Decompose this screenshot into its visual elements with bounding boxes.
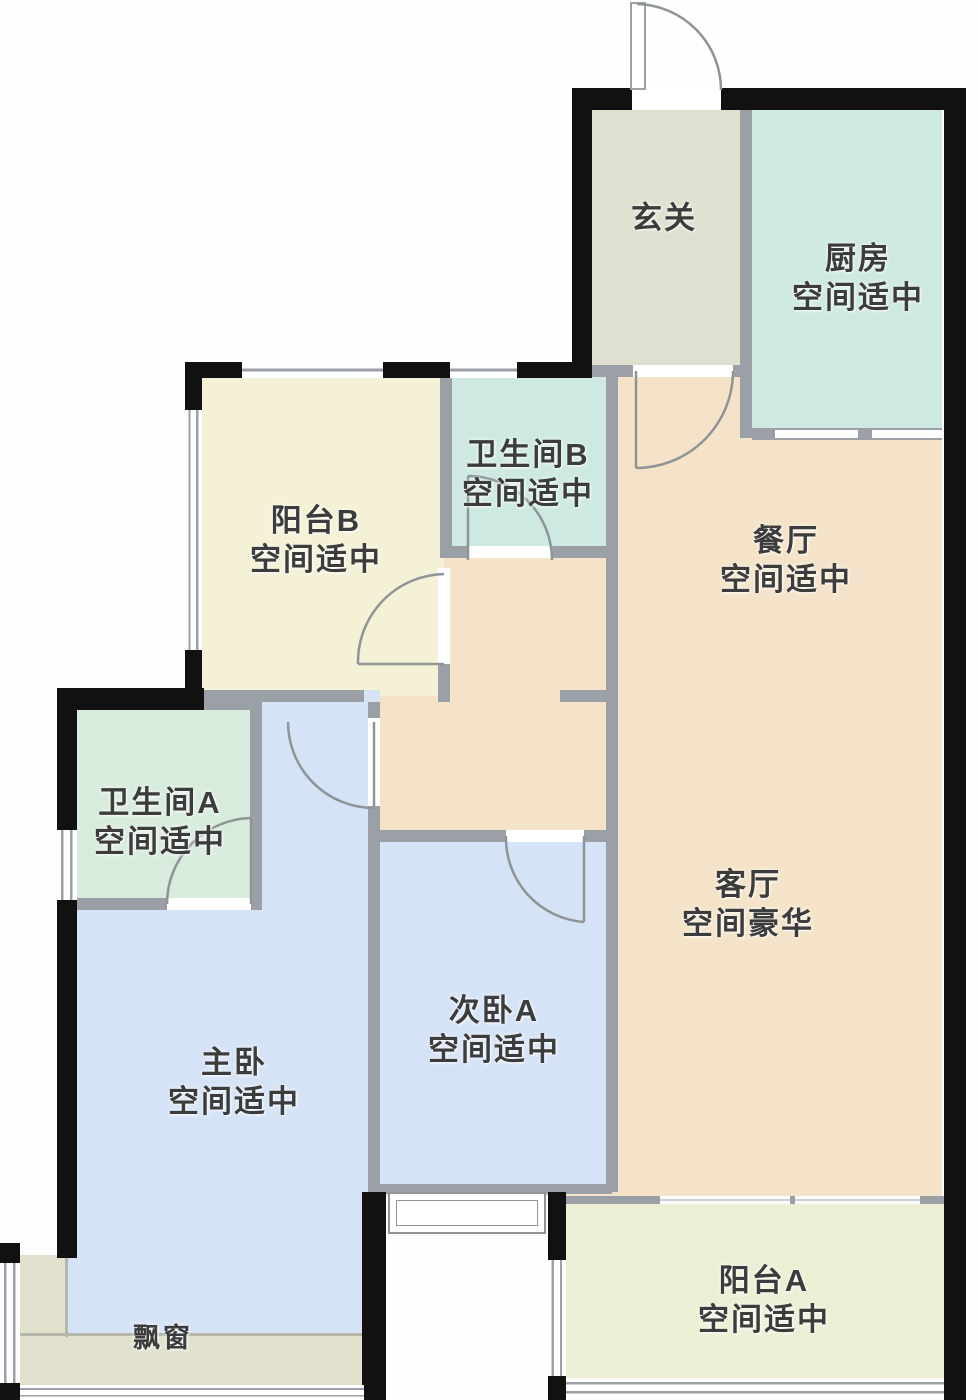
room-name: 玄关 [631, 199, 697, 238]
label-bedroom-a: 次卧A 空间适中 [428, 991, 560, 1069]
room-name: 阳台B [250, 501, 382, 540]
interior-wall [368, 702, 380, 718]
room-name: 飘窗 [133, 1323, 193, 1353]
room-rating: 空间适中 [720, 560, 852, 599]
bedroom-a-bay-window [388, 1192, 546, 1234]
room-name: 阳台A [698, 1261, 830, 1300]
exterior-wall [57, 900, 77, 1258]
label-dining: 餐厅 空间适中 [720, 521, 852, 599]
exterior-wall [944, 88, 966, 1400]
room-name: 卫生间B [462, 435, 594, 474]
entrance-door-leaf [630, 2, 646, 90]
room-name: 卫生间A [94, 783, 226, 822]
window-symbol [566, 1378, 944, 1398]
exterior-wall [721, 88, 966, 110]
exterior-wall [362, 1192, 386, 1400]
room-rating: 空间适中 [94, 822, 226, 861]
label-bath-a: 卫生间A 空间适中 [94, 783, 226, 861]
interior-wall [606, 371, 618, 1192]
interior-wall [368, 806, 380, 1192]
room-rating: 空间适中 [698, 1300, 830, 1339]
bay-window-edge-line [20, 1333, 376, 1336]
interior-wall [250, 702, 262, 906]
room-rating: 空间适中 [168, 1082, 300, 1121]
exterior-wall [0, 1383, 20, 1400]
interior-wall [440, 371, 452, 558]
window-symbol [548, 1260, 566, 1376]
exterior-wall [57, 688, 204, 710]
label-bath-b: 卫生间B 空间适中 [462, 435, 594, 513]
label-bay-window: 飘窗 [133, 1323, 193, 1353]
exterior-wall [185, 362, 202, 410]
window-symbol [242, 362, 383, 378]
room-name: 厨房 [792, 239, 924, 278]
exterior-wall [548, 1192, 566, 1260]
door-opening [506, 830, 584, 842]
exterior-wall [57, 688, 77, 830]
window-symbol [20, 1385, 364, 1400]
room-name: 餐厅 [720, 521, 852, 560]
room-bay-window-bottom [20, 1335, 374, 1388]
label-hallway: 玄关 [631, 199, 697, 238]
window-symbol [660, 1196, 790, 1204]
interior-wall [740, 108, 752, 438]
room-dining-upper [612, 377, 752, 445]
door-opening [468, 546, 552, 558]
door-opening [167, 898, 251, 910]
window-symbol [775, 428, 858, 440]
window-symbol [0, 1263, 20, 1383]
interior-wall [438, 664, 450, 702]
exterior-wall [548, 1376, 566, 1400]
exterior-wall [383, 362, 450, 378]
room-corridor [257, 690, 380, 932]
interior-wall [560, 1196, 660, 1204]
window-symbol [185, 410, 202, 650]
room-rating: 空间豪华 [682, 904, 814, 943]
interior-wall [374, 830, 506, 842]
door-opening [633, 365, 733, 377]
label-balcony-a: 阳台A 空间适中 [698, 1261, 830, 1339]
room-name: 主卧 [168, 1043, 300, 1082]
window-symbol [57, 830, 77, 900]
room-name: 次卧A [428, 991, 560, 1030]
exterior-wall [517, 362, 592, 378]
interior-wall [733, 365, 742, 377]
door-swing-arc [637, 4, 721, 90]
bedroom-a-bay-window-inner [396, 1200, 538, 1226]
room-rating: 空间适中 [428, 1030, 560, 1069]
interior-wall [552, 546, 612, 558]
label-kitchen: 厨房 空间适中 [792, 239, 924, 317]
room-rating: 空间适中 [792, 278, 924, 317]
window-symbol [450, 362, 517, 378]
interior-wall [560, 690, 618, 702]
room-rating: 空间适中 [462, 474, 594, 513]
floor-plan: 玄关 厨房 空间适中 卫生间B 空间适中 阳台B 空间适中 餐厅 空间适中 卫生… [0, 0, 978, 1400]
door-opening [368, 718, 380, 806]
interior-wall [440, 546, 468, 558]
bay-window-edge-line [65, 1255, 68, 1337]
door-opening [438, 568, 450, 664]
label-living: 客厅 空间豪华 [682, 865, 814, 943]
room-master [67, 906, 374, 1337]
exterior-wall [572, 88, 592, 370]
exterior-wall [0, 1243, 20, 1263]
window-symbol [795, 1196, 920, 1204]
room-hallway [592, 108, 740, 368]
label-balcony-b: 阳台B 空间适中 [250, 501, 382, 579]
door-opening [632, 88, 721, 110]
interior-wall [584, 830, 612, 842]
window-symbol [872, 428, 942, 440]
room-name: 客厅 [682, 865, 814, 904]
interior-wall [251, 898, 262, 910]
room-rating: 空间适中 [250, 540, 382, 579]
interior-wall [920, 1196, 944, 1204]
floor-plan-screenshot: 玄关 厨房 空间适中 卫生间B 空间适中 阳台B 空间适中 餐厅 空间适中 卫生… [0, 0, 978, 1400]
label-master: 主卧 空间适中 [168, 1043, 300, 1121]
interior-wall [197, 698, 262, 710]
interior-wall [752, 428, 775, 440]
